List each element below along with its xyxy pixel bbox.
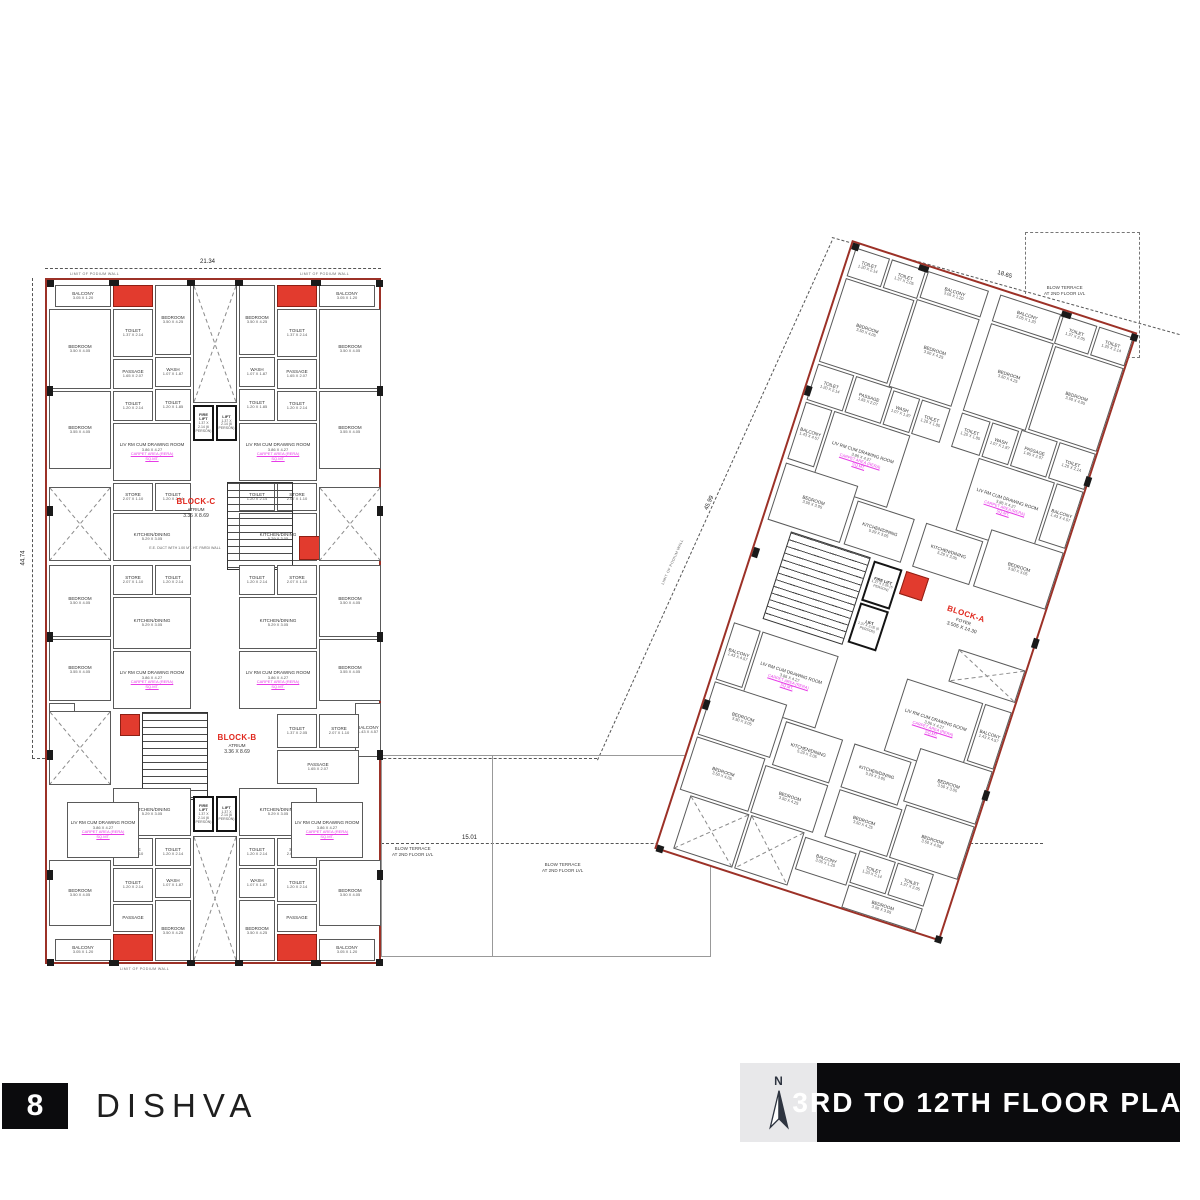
- duct-shaft: [277, 934, 317, 961]
- room-toilet: TOILET1.20 X 2.14: [155, 838, 191, 866]
- building-block-b-c: BALCONY3.05 X 1.20BALCONY3.05 X 1.20BEDR…: [45, 278, 381, 964]
- wall-column: [311, 280, 321, 286]
- duct-shaft: [120, 714, 140, 736]
- room-wash: WASH1.07 X 1.87: [155, 868, 191, 898]
- terrace-label: BLOW TERRACEAT 2ND FLOOR LVL: [392, 846, 433, 858]
- floor-plan-sheet: 21.34 44.74 15.01 45.99 18.65 LIMIT OF P…: [0, 0, 1200, 1200]
- lift-shaft: LIFT1.37 X 2.14 (6 PERSON): [216, 796, 237, 832]
- room-liv-rm-cum-drawing-room: LIV RM CUM DRAWING ROOM3.86 X 4.27CARPET…: [67, 802, 139, 858]
- wall-column: [235, 960, 243, 966]
- room-toilet: TOILET1.20 X 2.14: [277, 868, 317, 902]
- lift-shaft: LIFT1.37 X 2.14 (6 PERSON): [216, 405, 237, 441]
- wall-column: [934, 935, 943, 944]
- wall-column: [47, 506, 53, 516]
- blow-terrace: [193, 285, 237, 403]
- podium-wall-note: LIMIT OF PODIUM WALL: [120, 967, 169, 971]
- room-toilet: TOILET1.20 X 1.85: [155, 389, 191, 421]
- wall-column: [376, 280, 383, 287]
- wall-column: [311, 960, 321, 966]
- wall-column: [1031, 638, 1040, 649]
- blow-terrace: [193, 836, 237, 961]
- room-store: STORE2.07 X 1.10: [277, 565, 317, 595]
- room-bedroom: BEDROOM3.50 X 4.25: [239, 285, 275, 355]
- project-name: DISHVA: [96, 1083, 258, 1129]
- block-label: BLOCK-CATRIUM3.36 X 8.69: [169, 486, 223, 530]
- room-wash: WASH1.07 X 1.87: [239, 357, 275, 387]
- plan-title: 3RD TO 12TH FLOOR PLAN: [817, 1063, 1180, 1142]
- terrace-between-buildings: BLOW TERRACEAT 2ND FLOOR LVL BLOW TERRAC…: [381, 755, 711, 957]
- wall-column: [47, 870, 53, 880]
- podium-wall-note: LIMIT OF PODIUM WALL: [300, 272, 349, 276]
- wall-column: [187, 280, 195, 286]
- room-bedroom: BEDROOM3.50 X 4.25: [155, 285, 191, 355]
- room-wash: WASH1.07 X 1.87: [239, 868, 275, 898]
- podium-wall-note: LIMIT OF PODIUM WALL: [661, 539, 685, 586]
- room-bedroom: BEDROOM3.50 X 4.05: [319, 565, 381, 637]
- duct-shaft: [277, 285, 317, 307]
- room-kitchen-dining: KITCHEN/DINING5.29 X 3.05: [239, 597, 317, 649]
- room-store: STORE2.07 X 1.10: [319, 714, 359, 748]
- terrace-label: BLOW TERRACEAT 2ND FLOOR LVL: [542, 862, 583, 874]
- room-store: STORE2.07 X 1.10: [113, 483, 153, 511]
- room-wash: WASH1.07 X 1.87: [155, 357, 191, 387]
- room-bedroom: BEDROOM3.50 X 4.05: [319, 860, 381, 926]
- wall-column: [235, 280, 243, 286]
- wall-column: [109, 960, 119, 966]
- wall-column: [47, 386, 53, 396]
- room-bedroom: BEDROOM3.50 X 4.05: [319, 309, 381, 389]
- wall-column: [47, 280, 54, 287]
- wall-column: [47, 959, 54, 966]
- room-bedroom: BEDROOM3.50 X 4.05: [49, 565, 111, 637]
- blow-terrace: [49, 711, 111, 785]
- room-passage: PASSAGE1.65 X 2.07: [277, 359, 317, 389]
- room-liv-rm-cum-drawing-room: LIV RM CUM DRAWING ROOM3.86 X 4.27CARPET…: [113, 651, 191, 709]
- block-label: BLOCK-AFOYER3.505 X 14.30: [920, 585, 1008, 656]
- room-bedroom: BEDROOM3.55 X 4.05: [49, 639, 111, 701]
- north-letter: N: [774, 1074, 783, 1088]
- room-liv-rm-cum-drawing-room: LIV RM CUM DRAWING ROOM3.86 X 4.27CARPET…: [291, 802, 363, 858]
- wall-column: [47, 750, 53, 760]
- room-bedroom: BEDROOM3.50 X 4.25: [155, 900, 191, 961]
- room-passage: PASSAGE1.65 X 2.07: [277, 750, 359, 784]
- wall-column: [377, 750, 383, 760]
- dim-top-value: 21.34: [198, 259, 217, 265]
- wall-column: [377, 386, 383, 396]
- plan-note: E.E. DUCT WITH 1.00 MT. HT. PARDI WALL: [147, 535, 223, 561]
- staircase: [142, 712, 208, 800]
- wall-column: [376, 959, 383, 966]
- room-balcony: BALCONY3.05 X 1.20: [319, 285, 375, 307]
- room-toilet: TOILET1.37 X 2.05: [277, 714, 317, 748]
- wall-column: [377, 870, 383, 880]
- site-line-left: [32, 278, 33, 758]
- room-passage: PASSAGE1.65 X 2.07: [113, 359, 153, 389]
- wall-column: [187, 960, 195, 966]
- room-bedroom: BEDROOM3.50 X 4.05: [49, 860, 111, 926]
- lift-shaft: FIRE LIFT1.37 X 2.14 (6 PERSON): [193, 796, 214, 832]
- room-liv-rm-cum-drawing-room: LIV RM CUM DRAWING ROOM3.86 X 4.27CARPET…: [239, 423, 317, 481]
- terrace-label: BLOW TERRACEAT 2ND FLOOR LVL: [1044, 285, 1085, 297]
- duct-shaft: [113, 285, 153, 307]
- dim-line-top: [45, 268, 381, 269]
- wall-column: [981, 790, 990, 801]
- room-toilet: TOILET1.37 X 2.14: [113, 309, 153, 357]
- room-liv-rm-cum-drawing-room: LIV RM CUM DRAWING ROOM3.86 X 4.27CARPET…: [239, 651, 317, 709]
- room-bedroom: BEDROOM3.50 X 4.05: [49, 309, 111, 389]
- room-toilet: TOILET1.20 X 2.14: [239, 565, 275, 595]
- wall-column: [1083, 476, 1092, 487]
- duct-shaft: [899, 571, 929, 601]
- dim-left-value: 44.74: [21, 548, 27, 567]
- wall-column: [751, 547, 760, 558]
- room-toilet: TOILET1.20 X 2.14: [277, 391, 317, 421]
- dim-right-top-value: 18.65: [995, 269, 1015, 280]
- room-liv-rm-cum-drawing-room: LIV RM CUM DRAWING ROOM3.86 X 4.27CARPET…: [113, 423, 191, 481]
- room-balcony: BALCONY3.05 X 1.20: [319, 939, 375, 961]
- lift-shaft: FIRE LIFT1.37 X 2.14 (6 PERSON): [193, 405, 214, 441]
- blow-terrace: [49, 487, 111, 561]
- room-toilet: TOILET1.20 X 2.14: [113, 868, 153, 902]
- blow-terrace: [319, 487, 381, 561]
- room-kitchen-dining: KITCHEN/DINING5.29 X 3.05: [113, 597, 191, 649]
- room-bedroom: BEDROOM3.55 X 4.05: [319, 639, 381, 701]
- room-bedroom: BEDROOM3.50 X 4.25: [239, 900, 275, 961]
- room-toilet: TOILET1.20 X 1.85: [239, 389, 275, 421]
- duct-shaft: [113, 934, 153, 961]
- room-toilet: TOILET1.37 X 2.14: [277, 309, 317, 357]
- building-block-a: TOILET1.20 X 2.14TOILET1.20 X 2.14TOILET…: [654, 240, 1137, 941]
- room-passage: PASSAGE: [113, 904, 153, 932]
- north-arrow-icon: [764, 1089, 794, 1131]
- room-store: STORE2.07 X 1.10: [113, 565, 153, 595]
- block-label: BLOCK-BATRIUM3.36 X 8.69: [210, 722, 264, 766]
- terrace-divider: [492, 756, 493, 956]
- room-toilet: TOILET1.20 X 2.14: [155, 565, 191, 595]
- wall-column: [377, 632, 383, 642]
- podium-wall-note: LIMIT OF PODIUM WALL: [70, 272, 119, 276]
- sheet-number-badge: 8: [2, 1083, 68, 1129]
- sheet-number: 8: [27, 1089, 44, 1123]
- room-bedroom: BEDROOM3.55 X 4.05: [49, 391, 111, 469]
- wall-column: [47, 632, 53, 642]
- room-balcony: BALCONY3.05 X 1.20: [55, 939, 111, 961]
- staircase: [227, 482, 293, 570]
- room-toilet: TOILET1.20 X 2.14: [113, 391, 153, 421]
- wall-column: [377, 506, 383, 516]
- room-passage: PASSAGE: [277, 904, 317, 932]
- room-bedroom: BEDROOM3.55 X 4.05: [319, 391, 381, 469]
- room-balcony: BALCONY3.05 X 1.20: [55, 285, 111, 307]
- room-toilet: TOILET1.20 X 2.14: [239, 838, 275, 866]
- wall-column: [109, 280, 119, 286]
